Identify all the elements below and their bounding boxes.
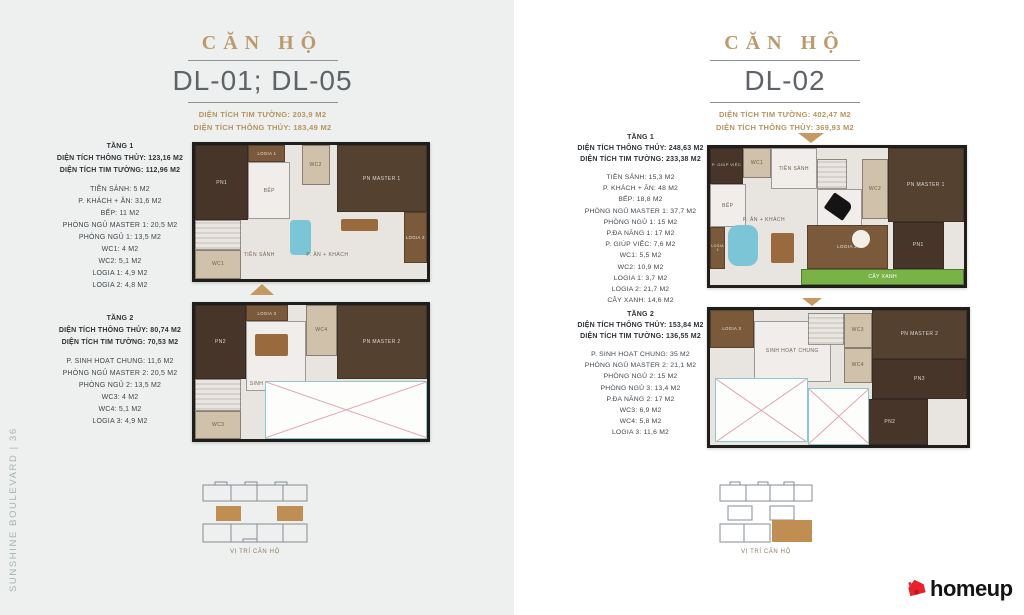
left-key-plan	[195, 480, 315, 546]
plan-room-pn3: PN3	[872, 359, 967, 400]
brand-wordmark: homeup	[930, 578, 1013, 600]
room-area-line: PHÒNG NGỦ 2: 13,5 M2	[30, 380, 210, 392]
room-area-line: TIỀN SẢNH: 15,3 M2	[553, 172, 728, 183]
right-unit-heading: CĂN HỘ	[665, 32, 905, 55]
plan-room-wc4: WC4	[844, 348, 872, 383]
room-area-line: TIỀN SẢNH: 5 M2	[30, 184, 210, 196]
plan-room-wc1: WC1	[743, 148, 771, 178]
house-icon	[906, 576, 927, 602]
room-area-line: PHÒNG NGỦ 1: 13,5 M2	[30, 232, 210, 244]
left-floor1-specs: TẦNG 1 DIỆN TÍCH THÔNG THỦY: 123,16 M2 D…	[30, 141, 210, 292]
right-key-plan	[716, 480, 816, 546]
room-area-line: P. SINH HOẠT CHUNG: 35 M2	[553, 349, 728, 360]
room-area-line: PHÒNG NGỦ MASTER 2: 20,5 M2	[30, 368, 210, 380]
room-area-line: LOGIA 3: 11,6 M2	[553, 427, 728, 438]
left-floor1-plan: PN1 LOGIA 1 BẾP WC2 PN MASTER 1 LOGIA 2 …	[192, 142, 430, 282]
plan-label-tien-sanh: TIỀN SẢNH	[244, 252, 275, 258]
floor-thong-thuy: DIỆN TÍCH THÔNG THỦY: 80,74 M2	[30, 325, 210, 337]
room-area-line: LOGIA 1: 3,7 M2	[553, 273, 728, 284]
room-area-line: PHÒNG NGỦ MASTER 1: 37,7 M2	[553, 206, 728, 217]
room-area-line: PHÒNG NGỦ MASTER 2: 21,1 M2	[553, 360, 728, 371]
room-area-line: WC4: 5,1 M2	[30, 404, 210, 416]
plan-void-area	[715, 378, 808, 443]
left-area-tim-tuong: DIỆN TÍCH TIM TƯỜNG: 203,9 M2	[140, 108, 385, 121]
plan-room-wc3: WC3	[844, 313, 872, 348]
floor-tim-tuong: DIỆN TÍCH TIM TƯỜNG: 233,38 M2	[553, 154, 728, 165]
floor-name: TẦNG 1	[553, 132, 728, 143]
right-area-tim-tuong: DIỆN TÍCH TIM TƯỜNG: 402,47 M2	[665, 108, 905, 121]
left-area-thong-thuy: DIỆN TÍCH THÔNG THỦY: 183,49 M2	[140, 121, 385, 134]
divider	[188, 102, 338, 103]
floor-tim-tuong: DIỆN TÍCH TIM TƯỜNG: 112,96 M2	[30, 165, 210, 177]
room-area-line: WC1: 5,5 M2	[553, 250, 728, 261]
entrance-arrow-icon	[798, 133, 824, 143]
floor-name: TẦNG 2	[553, 309, 728, 320]
plan-room-logia1: LOGIA 1	[248, 145, 285, 162]
room-area-line: BẾP: 11 M2	[30, 208, 210, 220]
room-area-line: WC2: 5,1 M2	[30, 256, 210, 268]
room-area-line: WC4: 5,8 M2	[553, 416, 728, 427]
left-floor2-specs: TẦNG 2 DIỆN TÍCH THÔNG THỦY: 80,74 M2 DI…	[30, 313, 210, 428]
floor-name: TẦNG 1	[30, 141, 210, 153]
left-key-plan-caption: VỊ TRÍ CĂN HỘ	[195, 549, 315, 555]
plan-room-wc1: WC1	[195, 250, 241, 279]
floor-tim-tuong: DIỆN TÍCH TIM TƯỜNG: 70,53 M2	[30, 337, 210, 349]
highlighted-unit-dl01	[216, 506, 241, 521]
floor-tim-tuong: DIỆN TÍCH TIM TƯỜNG: 136,55 M2	[553, 331, 728, 342]
floor-thong-thuy: DIỆN TÍCH THÔNG THỦY: 123,16 M2	[30, 153, 210, 165]
sofa-accent	[341, 219, 378, 231]
plan-room-logia3: LOGIA 3	[246, 305, 288, 321]
room-area-line: LOGIA 3: 4,9 M2	[30, 416, 210, 428]
room-area-line: WC1: 4 M2	[30, 244, 210, 256]
room-area-line: PHÒNG NGỦ 2: 15 M2	[553, 371, 728, 382]
plan-room-pn1: PN1	[893, 222, 944, 269]
brand-logo: homeup	[906, 576, 1013, 602]
plan-room-tien-sanh: TIỀN SẢNH	[771, 148, 817, 189]
right-floor2-plan: LOGIA 3 SINH HOẠT CHUNG WC3 WC4 PN MASTE…	[707, 307, 970, 448]
plan-room-pn-master1: PN MASTER 1	[337, 145, 427, 212]
right-floor1-specs: TẦNG 1 DIỆN TÍCH THÔNG THỦY: 248,63 M2 D…	[553, 132, 728, 306]
right-unit-code: DL-02	[665, 65, 905, 97]
plan-room-bep: BẾP	[710, 184, 746, 228]
left-floor2-plan: PN2 LOGIA 3 SINH HOẠT CHUNG WC4 PN MASTE…	[192, 302, 430, 442]
left-unit-heading: CĂN HỘ	[140, 32, 385, 55]
room-area-line: LOGIA 2: 4,8 M2	[30, 280, 210, 292]
plan-stairs	[808, 313, 844, 345]
room-area-line: LOGIA 1: 4,9 M2	[30, 268, 210, 280]
plan-room-cay-xanh: CÂY XANH	[801, 269, 964, 285]
plan-void-area	[808, 388, 870, 445]
divider	[710, 102, 860, 103]
room-area-line: PHÒNG NGỦ MASTER 1: 20,5 M2	[30, 220, 210, 232]
plan-room-logia2: LOGIA 2	[807, 225, 888, 269]
room-area-line: WC2: 10,9 M2	[553, 262, 728, 273]
plan-room-wc2: WC2	[862, 159, 887, 219]
plan-label-p-an-khach: P. ĂN + KHÁCH	[306, 252, 348, 258]
room-area-line: P. KHÁCH + ĂN: 31,6 M2	[30, 196, 210, 208]
plan-room-logia2: LOGIA 2	[404, 212, 427, 263]
left-unit-title-block: CĂN HỘ DL-01; DL-05 DIỆN TÍCH TIM TƯỜNG:…	[140, 32, 385, 134]
plan-room-pn-master1: PN MASTER 1	[888, 148, 964, 222]
plan-stairs	[195, 379, 241, 411]
room-area-line: P.ĐA NĂNG 1: 17 M2	[553, 228, 728, 239]
plan-room-giup-viec: P. GIÚP VIỆC	[710, 148, 743, 184]
plan-room-bep: BẾP	[248, 162, 290, 218]
entrance-arrow-icon	[250, 284, 274, 295]
floor-name: TẦNG 2	[30, 313, 210, 325]
plan-room-wc4: WC4	[306, 305, 336, 356]
room-area-line: P. SINH HOẠT CHUNG: 11,6 M2	[30, 356, 210, 368]
plan-label-p-an-khach: P. ĂN + KHÁCH	[743, 217, 785, 223]
dining-table-accent	[728, 225, 758, 266]
floor-thong-thuy: DIỆN TÍCH THÔNG THỦY: 153,84 M2	[553, 320, 728, 331]
room-area-line: PHÒNG NGỦ 3: 13,4 M2	[553, 383, 728, 394]
plan-room-logia3: LOGIA 3	[710, 310, 754, 348]
entrance-arrow-icon	[802, 298, 822, 306]
room-area-line: CÂY XANH: 14,6 M2	[553, 295, 728, 306]
brochure-page: SUNSHINE BOULEVARD | 36 CĂN HỘ DL-01; DL…	[0, 0, 1024, 615]
page-edge-label: SUNSHINE BOULEVARD | 36	[8, 377, 19, 592]
plan-stairs	[817, 159, 847, 189]
divider	[710, 60, 860, 61]
highlighted-unit-dl05	[277, 506, 303, 521]
plan-room-wc2: WC2	[302, 145, 330, 185]
plan-stairs	[195, 220, 241, 249]
room-area-line: PHÒNG NGỦ 1: 15 M2	[553, 217, 728, 228]
left-unit-code: DL-01; DL-05	[140, 65, 385, 97]
divider	[188, 60, 338, 61]
dining-table-accent	[290, 220, 311, 255]
right-floor2-specs: TẦNG 2 DIỆN TÍCH THÔNG THỦY: 153,84 M2 D…	[553, 309, 728, 439]
highlighted-unit-dl02	[772, 520, 812, 542]
room-area-line: WC3: 4 M2	[30, 392, 210, 404]
plan-room-logia1: LOGIA 1	[710, 227, 725, 268]
right-key-plan-caption: VỊ TRÍ CĂN HỘ	[706, 549, 826, 555]
sofa-accent	[771, 233, 794, 263]
plan-void-area	[265, 381, 427, 439]
room-area-line: LOGIA 2: 21,7 M2	[553, 284, 728, 295]
plan-room-wc3: WC3	[195, 411, 241, 439]
plan-room-pn1: PN1	[195, 145, 248, 220]
plan-room-pn-master2: PN MASTER 2	[337, 305, 427, 379]
room-area-line: WC3: 6,9 M2	[553, 405, 728, 416]
room-area-line: BẾP: 18,8 M2	[553, 194, 728, 205]
plan-room-pn2: PN2	[195, 305, 246, 379]
right-unit-title-block: CĂN HỘ DL-02 DIỆN TÍCH TIM TƯỜNG: 402,47…	[665, 32, 905, 134]
right-floor1-plan: P. GIÚP VIỆC WC1 TIỀN SẢNH BẾP LOGIA 1 P…	[707, 145, 967, 288]
room-area-line: P. GIÚP VIỆC: 7,6 M2	[553, 239, 728, 250]
plan-room-pn-master2: PN MASTER 2	[872, 310, 967, 359]
room-area-line: P.ĐA NĂNG 2: 17 M2	[553, 394, 728, 405]
floor-thong-thuy: DIỆN TÍCH THÔNG THỦY: 248,63 M2	[553, 143, 728, 154]
plan-room-sinh-hoat-chung: SINH HOẠT CHUNG	[246, 321, 306, 391]
room-area-line: P. KHÁCH + ĂN: 48 M2	[553, 183, 728, 194]
